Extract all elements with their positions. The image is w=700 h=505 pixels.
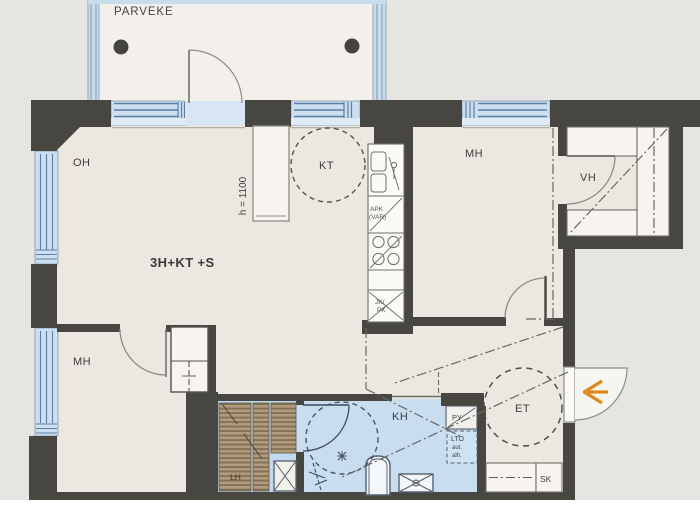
svg-text:ET: ET bbox=[515, 403, 530, 415]
svg-text:alh.: alh. bbox=[452, 453, 462, 459]
svg-text:PK: PK bbox=[377, 307, 386, 314]
svg-text:KH: KH bbox=[392, 411, 408, 423]
svg-text:MH: MH bbox=[465, 148, 483, 160]
svg-text:APK: APK bbox=[370, 206, 384, 213]
svg-text:h = 1100: h = 1100 bbox=[238, 176, 249, 215]
svg-text:LH: LH bbox=[230, 472, 241, 482]
svg-text:3H+KT +S: 3H+KT +S bbox=[150, 255, 215, 270]
svg-text:LTO: LTO bbox=[451, 436, 465, 443]
svg-text:VH: VH bbox=[580, 172, 596, 184]
svg-text:(VAR): (VAR) bbox=[369, 214, 386, 221]
svg-text:PY: PY bbox=[452, 413, 462, 422]
svg-text:aut.: aut. bbox=[452, 445, 462, 451]
svg-text:PARVEKE: PARVEKE bbox=[114, 6, 174, 18]
svg-text:SK: SK bbox=[540, 474, 552, 484]
svg-text:OH: OH bbox=[73, 157, 91, 169]
svg-text:KT: KT bbox=[319, 160, 334, 172]
svg-text:JK/: JK/ bbox=[375, 299, 385, 306]
svg-text:MH: MH bbox=[73, 356, 91, 368]
